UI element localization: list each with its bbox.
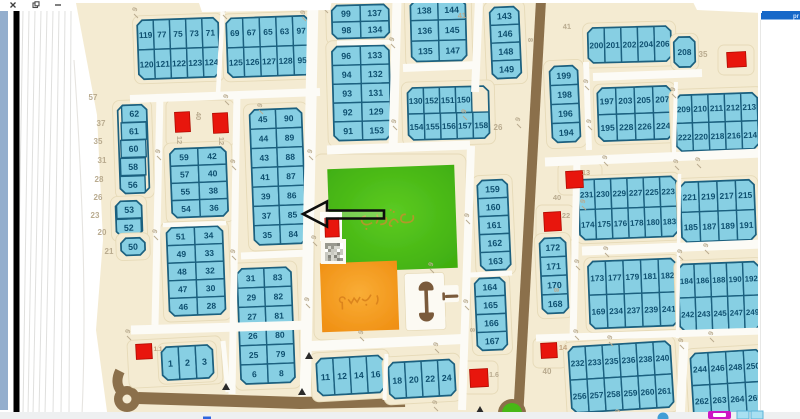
svg-text:125: 125	[229, 57, 244, 67]
svg-text:31: 31	[98, 156, 107, 165]
svg-text:158: 158	[474, 120, 488, 130]
svg-text:207: 207	[655, 94, 670, 104]
svg-text:88: 88	[285, 152, 295, 162]
svg-text:35: 35	[699, 50, 708, 59]
svg-text:264: 264	[730, 393, 745, 404]
svg-text:6: 6	[252, 369, 257, 379]
svg-text:28: 28	[95, 175, 104, 184]
svg-text:pr: pr	[793, 14, 800, 20]
svg-text:45: 45	[258, 114, 268, 124]
svg-text:223: 223	[661, 187, 675, 197]
svg-text:20: 20	[98, 228, 107, 237]
svg-text:179: 179	[625, 271, 640, 282]
svg-text:197: 197	[599, 96, 614, 106]
svg-text:132: 132	[368, 69, 383, 79]
svg-text:34: 34	[204, 230, 214, 240]
svg-text:43: 43	[259, 153, 269, 163]
svg-text:221: 221	[682, 192, 697, 203]
svg-text:121: 121	[156, 59, 171, 69]
svg-text:60: 60	[128, 144, 138, 154]
svg-text:81: 81	[274, 310, 284, 320]
svg-text:23: 23	[91, 211, 100, 220]
svg-text:242: 242	[681, 310, 695, 320]
svg-text:206: 206	[656, 38, 670, 48]
svg-text:33: 33	[204, 248, 214, 258]
svg-text:176: 176	[613, 219, 627, 229]
svg-text:91: 91	[343, 126, 353, 136]
svg-text:183: 183	[662, 217, 676, 227]
svg-text:256: 256	[572, 391, 587, 402]
svg-text:41: 41	[562, 22, 571, 31]
svg-text:166: 166	[484, 318, 499, 329]
svg-text:194: 194	[559, 127, 574, 138]
svg-text:259: 259	[623, 388, 638, 399]
svg-text:173: 173	[590, 273, 605, 284]
svg-text:233: 233	[587, 357, 602, 368]
svg-text:86: 86	[287, 190, 297, 200]
svg-text:165: 165	[483, 300, 498, 311]
svg-text:248: 248	[728, 362, 743, 373]
svg-text:46: 46	[178, 302, 188, 312]
svg-text:26: 26	[494, 123, 503, 132]
svg-text:14: 14	[354, 370, 364, 381]
svg-text:50: 50	[128, 242, 138, 252]
svg-text:214: 214	[743, 131, 757, 140]
svg-text:258: 258	[606, 389, 621, 400]
svg-text:187: 187	[702, 221, 717, 232]
svg-text:94: 94	[342, 70, 352, 80]
svg-text:241: 241	[662, 304, 677, 315]
svg-text:136: 136	[417, 26, 432, 36]
svg-text:138: 138	[417, 5, 432, 15]
svg-text:135: 135	[418, 46, 433, 56]
svg-text:167: 167	[485, 336, 500, 347]
svg-text:164: 164	[482, 282, 497, 293]
svg-text:41: 41	[260, 172, 270, 182]
svg-text:190: 190	[728, 275, 742, 285]
svg-text:137: 137	[367, 8, 382, 18]
svg-text:124: 124	[204, 57, 219, 67]
svg-text:245: 245	[713, 309, 727, 319]
svg-text:12: 12	[337, 371, 347, 382]
svg-text:196: 196	[558, 108, 573, 119]
svg-text:203: 203	[618, 95, 633, 105]
svg-text:39: 39	[261, 191, 271, 201]
svg-text:177: 177	[608, 272, 623, 283]
svg-text:65: 65	[263, 27, 273, 37]
svg-text:48: 48	[177, 266, 187, 276]
svg-text:257: 257	[589, 390, 604, 401]
svg-text:29: 29	[246, 292, 256, 302]
svg-text:215: 215	[738, 190, 753, 201]
svg-text:57: 57	[89, 93, 98, 102]
svg-text:18: 18	[392, 375, 402, 386]
svg-text:1.6: 1.6	[489, 372, 499, 379]
svg-text:151: 151	[441, 95, 455, 105]
svg-text:12: 12	[217, 137, 226, 145]
svg-text:53: 53	[124, 205, 134, 215]
svg-text:232: 232	[570, 358, 585, 369]
svg-text:49: 49	[176, 249, 186, 259]
svg-text:57: 57	[180, 169, 190, 179]
svg-text:211: 211	[710, 104, 724, 113]
svg-text:73: 73	[189, 28, 199, 38]
svg-text:79: 79	[276, 349, 286, 359]
svg-text:148: 148	[498, 46, 513, 57]
svg-text:201: 201	[606, 40, 620, 50]
svg-text:37: 37	[262, 210, 272, 220]
svg-text:147: 147	[445, 45, 460, 55]
svg-text:234: 234	[609, 306, 624, 317]
svg-text:63: 63	[280, 26, 290, 36]
svg-text:238: 238	[638, 354, 653, 365]
svg-text:149: 149	[499, 64, 514, 75]
svg-text:22: 22	[425, 373, 435, 384]
svg-text:55: 55	[180, 186, 190, 196]
svg-text:61: 61	[129, 126, 139, 136]
svg-text:92: 92	[343, 107, 353, 117]
svg-text:159: 159	[485, 184, 500, 195]
svg-text:36: 36	[209, 203, 219, 213]
svg-text:87: 87	[286, 171, 296, 181]
svg-text:186: 186	[696, 276, 710, 286]
svg-text:208: 208	[677, 47, 691, 57]
svg-text:41: 41	[457, 11, 466, 20]
svg-text:157: 157	[458, 120, 472, 130]
svg-text:54: 54	[181, 204, 191, 214]
svg-text:146: 146	[497, 29, 512, 40]
svg-text:8: 8	[279, 368, 284, 378]
svg-text:128: 128	[278, 55, 293, 65]
svg-text:58: 58	[128, 162, 138, 172]
svg-text:216: 216	[727, 131, 741, 140]
svg-text:38: 38	[208, 185, 218, 195]
svg-text:199: 199	[556, 70, 571, 81]
svg-text:210: 210	[693, 104, 707, 113]
svg-text:192: 192	[744, 274, 758, 284]
svg-text:122: 122	[172, 58, 187, 68]
svg-text:8: 8	[468, 328, 477, 332]
svg-text:172: 172	[545, 242, 560, 253]
svg-text:249: 249	[746, 308, 760, 318]
svg-text:222: 222	[678, 133, 692, 142]
svg-text:178: 178	[630, 218, 644, 228]
svg-text:80: 80	[275, 330, 285, 340]
svg-text:90: 90	[284, 113, 294, 123]
svg-text:31: 31	[246, 273, 256, 283]
svg-text:225: 225	[645, 188, 659, 198]
svg-text:26: 26	[248, 331, 258, 341]
svg-text:120: 120	[139, 59, 154, 69]
svg-text:99: 99	[341, 9, 351, 19]
svg-text:13: 13	[582, 168, 590, 177]
svg-text:235: 235	[604, 356, 619, 367]
svg-text:218: 218	[711, 132, 725, 141]
svg-text:97: 97	[296, 25, 306, 35]
svg-text:261: 261	[657, 385, 672, 396]
svg-text:181: 181	[643, 271, 658, 282]
svg-text:154: 154	[409, 122, 423, 132]
svg-text:163: 163	[488, 256, 503, 267]
svg-text:123: 123	[188, 57, 203, 67]
svg-text:2: 2	[185, 358, 191, 368]
svg-text:246: 246	[710, 363, 725, 374]
svg-text:205: 205	[636, 95, 651, 105]
svg-text:161: 161	[486, 220, 501, 231]
svg-text:40: 40	[543, 367, 552, 376]
svg-text:3: 3	[202, 357, 208, 367]
svg-text:1: 1	[168, 358, 174, 368]
svg-text:239: 239	[644, 304, 659, 315]
svg-text:231: 231	[580, 190, 594, 200]
svg-text:150: 150	[457, 94, 471, 104]
svg-text:185: 185	[684, 222, 699, 233]
svg-text:143: 143	[497, 11, 512, 22]
svg-text:134: 134	[368, 24, 383, 34]
svg-text:244: 244	[693, 364, 708, 375]
svg-text:217: 217	[719, 190, 734, 201]
svg-text:200: 200	[589, 40, 603, 50]
svg-text:75: 75	[173, 29, 183, 39]
svg-text:219: 219	[701, 191, 716, 202]
svg-text:195: 195	[600, 123, 615, 133]
svg-text:224: 224	[656, 121, 671, 131]
svg-text:21: 21	[105, 247, 114, 256]
svg-text:27: 27	[247, 311, 257, 321]
svg-text:85: 85	[288, 209, 298, 219]
svg-text:230: 230	[596, 190, 610, 200]
svg-text:30: 30	[206, 283, 216, 293]
svg-text:182: 182	[660, 270, 675, 281]
svg-text:227: 227	[629, 188, 643, 198]
svg-text:96: 96	[341, 51, 351, 61]
svg-text:8: 8	[526, 38, 535, 42]
svg-text:153: 153	[369, 125, 384, 135]
svg-text:71: 71	[206, 28, 216, 38]
svg-text:247: 247	[730, 308, 744, 318]
svg-text:188: 188	[712, 275, 726, 285]
svg-text:262: 262	[695, 396, 710, 407]
svg-text:62: 62	[129, 109, 139, 119]
svg-text:12: 12	[175, 136, 184, 144]
svg-text:168: 168	[548, 299, 563, 310]
svg-text:98: 98	[341, 25, 351, 35]
svg-text:83: 83	[273, 272, 283, 282]
svg-text:35: 35	[262, 230, 272, 240]
svg-text:40: 40	[208, 168, 218, 178]
svg-text:84: 84	[288, 229, 298, 239]
svg-text:198: 198	[557, 89, 572, 100]
svg-text:243: 243	[697, 309, 711, 319]
svg-text:180: 180	[646, 218, 660, 228]
svg-text:1.1: 1.1	[153, 346, 162, 353]
svg-text:162: 162	[487, 238, 502, 249]
svg-text:82: 82	[273, 291, 283, 301]
svg-text:25: 25	[249, 350, 259, 360]
svg-text:32: 32	[205, 265, 215, 275]
svg-text:89: 89	[285, 132, 295, 142]
svg-text:220: 220	[694, 132, 708, 141]
svg-text:93: 93	[342, 88, 352, 98]
svg-text:133: 133	[367, 50, 382, 60]
svg-text:130: 130	[409, 96, 423, 106]
svg-text:119: 119	[139, 30, 153, 40]
svg-text:213: 213	[742, 103, 756, 112]
svg-text:212: 212	[726, 103, 740, 112]
svg-text:152: 152	[425, 95, 439, 105]
svg-text:160: 160	[486, 202, 501, 213]
svg-text:56: 56	[128, 180, 138, 190]
svg-text:263: 263	[712, 395, 727, 406]
svg-text:226: 226	[637, 121, 652, 131]
svg-text:191: 191	[739, 220, 754, 231]
svg-text:11: 11	[321, 372, 331, 383]
svg-text:240: 240	[655, 352, 670, 363]
svg-text:260: 260	[640, 386, 655, 397]
svg-text:175: 175	[597, 220, 611, 230]
svg-text:16: 16	[370, 369, 380, 380]
svg-text:20: 20	[409, 374, 419, 385]
svg-text:40: 40	[553, 193, 561, 202]
svg-text:42: 42	[207, 151, 217, 161]
svg-text:8: 8	[552, 288, 561, 292]
svg-text:40: 40	[194, 112, 203, 120]
svg-text:156: 156	[442, 121, 456, 131]
svg-text:26: 26	[94, 193, 103, 202]
svg-text:236: 236	[621, 355, 636, 366]
svg-text:174: 174	[581, 220, 595, 230]
svg-text:202: 202	[622, 39, 636, 49]
svg-text:126: 126	[245, 57, 260, 67]
svg-text:145: 145	[445, 25, 460, 35]
svg-text:69: 69	[230, 28, 240, 38]
svg-text:229: 229	[612, 189, 626, 199]
svg-text:37: 37	[97, 119, 106, 128]
svg-text:52: 52	[124, 223, 134, 233]
svg-text:14: 14	[559, 343, 568, 352]
svg-text:169: 169	[591, 306, 606, 317]
svg-text:237: 237	[627, 305, 642, 316]
svg-text:155: 155	[426, 121, 440, 131]
svg-text:44: 44	[259, 133, 269, 143]
svg-text:184: 184	[680, 277, 694, 287]
svg-text:171: 171	[546, 261, 561, 272]
svg-text:28: 28	[206, 301, 216, 311]
svg-text:127: 127	[262, 56, 277, 66]
svg-text:51: 51	[176, 231, 186, 241]
svg-text:67: 67	[247, 27, 257, 37]
svg-text:129: 129	[369, 106, 384, 116]
svg-text:131: 131	[368, 88, 383, 98]
svg-text:228: 228	[619, 122, 634, 132]
svg-text:22: 22	[562, 211, 570, 220]
svg-text:204: 204	[639, 39, 653, 49]
svg-text:77: 77	[157, 29, 167, 39]
svg-text:95: 95	[297, 55, 307, 65]
svg-text:35: 35	[94, 137, 103, 146]
svg-text:59: 59	[179, 152, 189, 162]
svg-text:47: 47	[178, 284, 188, 294]
svg-text:209: 209	[677, 105, 691, 114]
svg-text:189: 189	[720, 220, 735, 231]
svg-text:24: 24	[442, 373, 452, 384]
